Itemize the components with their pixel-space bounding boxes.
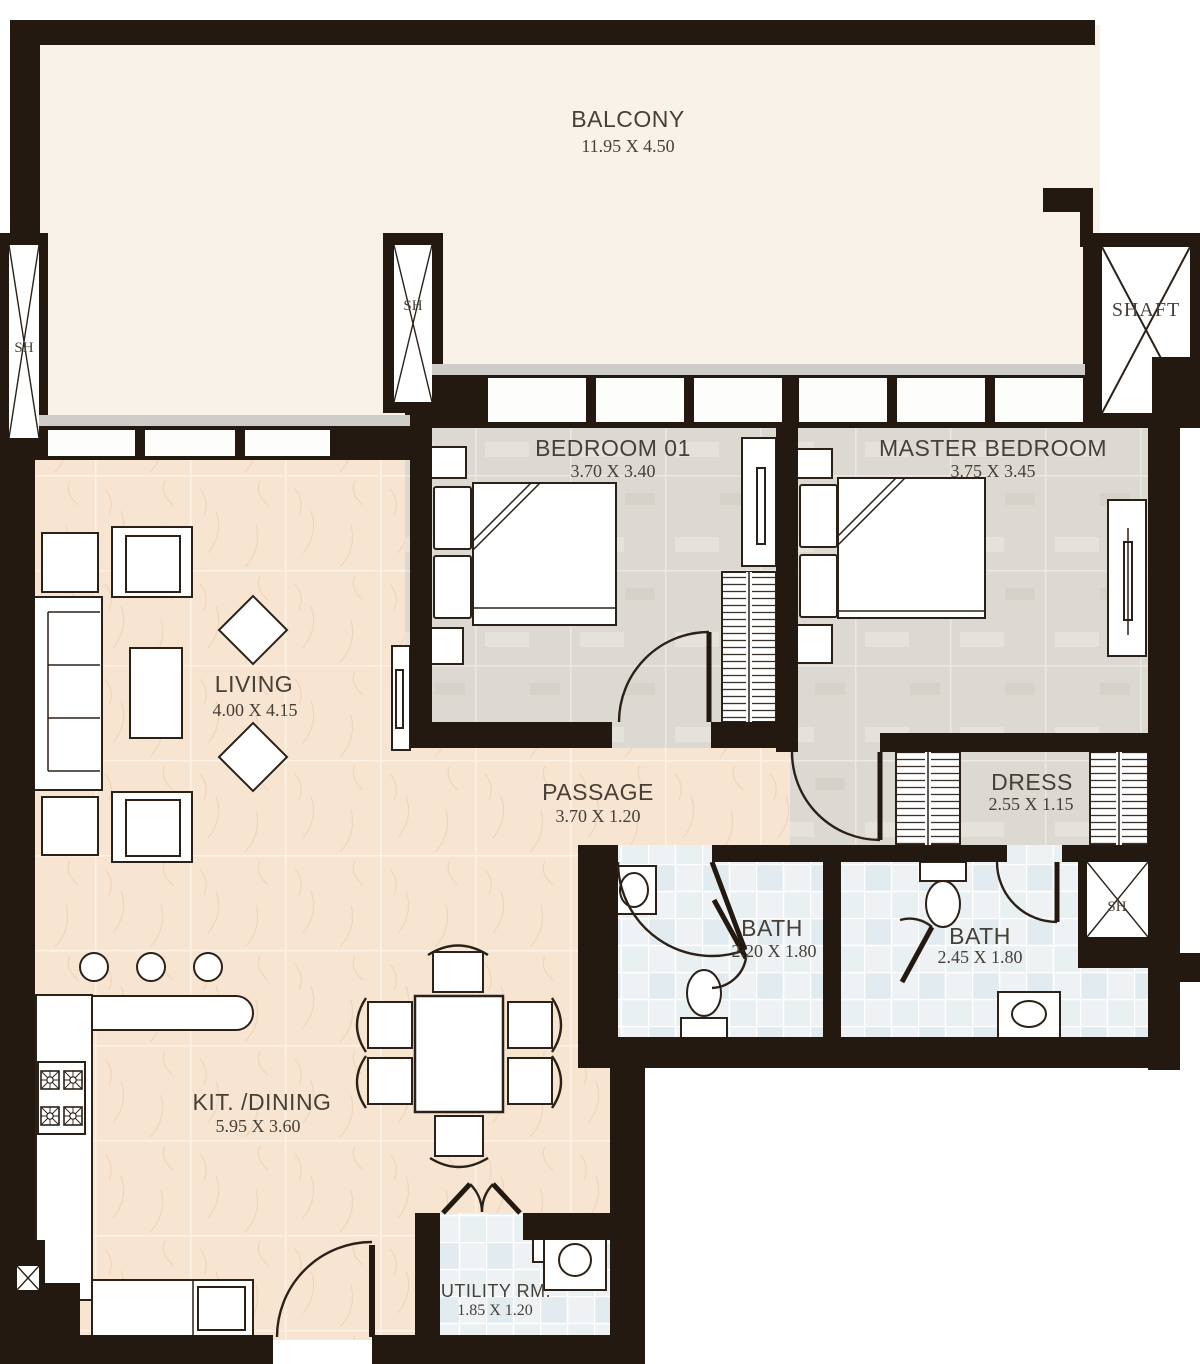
armchair: [42, 533, 98, 592]
window: [995, 378, 1083, 422]
breakfast-bar: [92, 996, 253, 1030]
window: [694, 378, 782, 422]
window: [596, 378, 684, 422]
wardrobe: [722, 572, 776, 722]
bedroom01-tv-unit: [742, 438, 776, 566]
bath2-dims: 2.45 X 1.80: [938, 947, 1023, 967]
armchair: [112, 527, 192, 597]
floors: [15, 25, 1165, 1364]
nightstand: [430, 447, 466, 478]
utility-dims: 1.85 X 1.20: [457, 1302, 533, 1319]
nightstand: [794, 625, 832, 663]
dress-label: DRESS: [991, 769, 1073, 795]
bath1-label: BATH: [741, 915, 803, 941]
balcony-edge-sill: [38, 415, 410, 426]
window: [897, 378, 985, 422]
window: [145, 430, 235, 456]
sink-counter: [92, 1280, 253, 1337]
bath2-label: BATH: [949, 923, 1011, 949]
window: [245, 430, 330, 456]
armchair: [112, 792, 192, 862]
apartment-floor-plan: BALCONY 11.95 X 4.50 BEDROOM 01 3.70 X 3…: [0, 0, 1200, 1364]
wardrobe: [1090, 752, 1148, 845]
sofa: [33, 597, 102, 790]
bed: [800, 478, 985, 618]
living-dims: 4.00 X 4.15: [213, 700, 298, 720]
kit-dining-dims: 5.95 X 3.60: [216, 1116, 301, 1136]
dress-dims: 2.55 X 1.15: [989, 794, 1074, 814]
bar-stool: [194, 953, 222, 981]
living-tv-unit: [392, 646, 410, 750]
shaft-mid-label: SH: [403, 298, 422, 314]
bedroom01-dims: 3.70 X 3.40: [571, 461, 656, 481]
bar-stool: [137, 953, 165, 981]
baths-floor: [578, 845, 1160, 1068]
shaft-mid: [394, 245, 432, 402]
wardrobe: [896, 752, 960, 845]
washbasin: [998, 992, 1060, 1038]
window: [799, 378, 887, 422]
shaft-top-right-label: SHAFT: [1112, 299, 1180, 321]
hob: [38, 1062, 85, 1134]
master-bedroom-dims: 3.75 X 3.45: [951, 461, 1036, 481]
armchair: [42, 797, 98, 855]
utility-label: UTILITY RM.: [441, 1281, 551, 1301]
passage-dims: 3.70 X 1.20: [556, 806, 641, 826]
balcony-label: BALCONY: [571, 106, 684, 132]
dining-chair: [428, 946, 488, 993]
bath1-dims: 2.20 X 1.80: [732, 941, 817, 961]
kit-dining-label: KIT. /DINING: [193, 1089, 332, 1115]
balcony-dims: 11.95 X 4.50: [581, 136, 674, 156]
shaft-top-right: [1102, 247, 1190, 413]
bar-stool: [80, 953, 108, 981]
coffee-table: [130, 648, 182, 738]
balcony-edge-sill: [430, 364, 1085, 375]
master-bedroom-label: MASTER BEDROOM: [879, 435, 1107, 461]
passage-label: PASSAGE: [542, 779, 654, 805]
shaft-right-label: SH: [1107, 899, 1126, 915]
duct-bottom-left: [17, 1266, 39, 1290]
floor-plan-drawing: BALCONY 11.95 X 4.50 BEDROOM 01 3.70 X 3…: [0, 0, 1200, 1364]
living-label: LIVING: [215, 671, 293, 697]
dining-table: [415, 996, 503, 1112]
window: [488, 378, 586, 422]
shaft-left-label: SH: [14, 340, 33, 356]
window: [48, 430, 135, 456]
master-tv-unit: [1108, 500, 1146, 656]
nightstand: [796, 449, 832, 478]
bedroom01-label: BEDROOM 01: [535, 435, 691, 461]
